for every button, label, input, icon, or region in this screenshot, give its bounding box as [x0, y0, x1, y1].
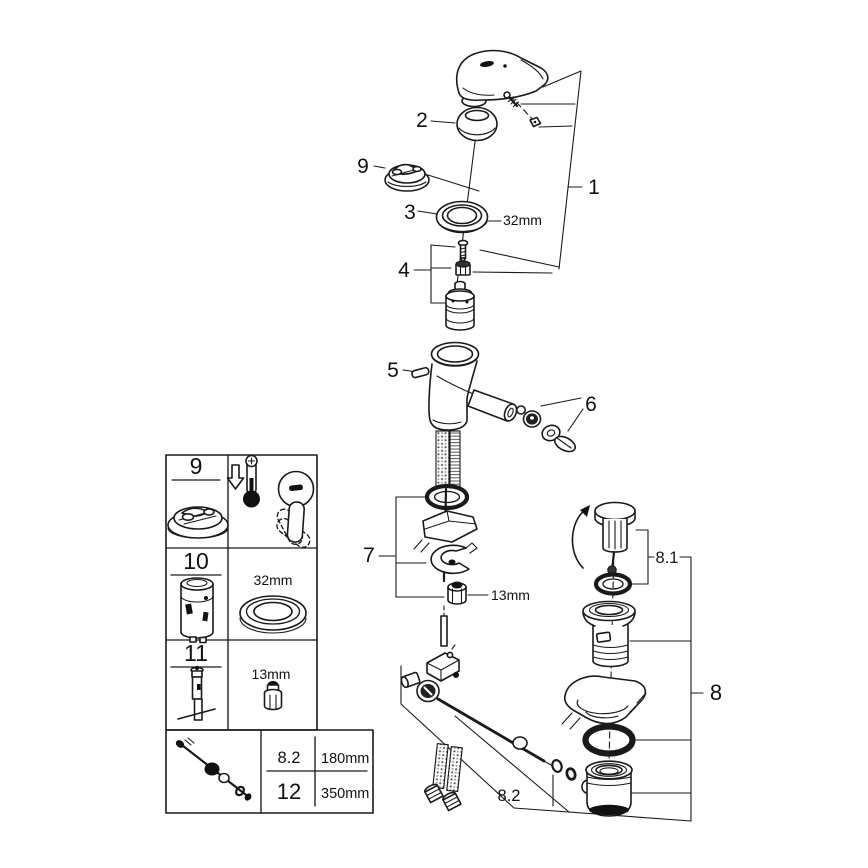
table-id-9: 9: [190, 453, 203, 479]
cap-icon: [168, 507, 228, 538]
dome-ring: [457, 108, 497, 141]
table-id-10: 10: [183, 548, 209, 574]
callout-8-1: 8.1: [656, 549, 679, 567]
callout-6: 6: [585, 393, 597, 416]
cartridge: [446, 282, 474, 331]
table-dim-13mm: 13mm: [252, 666, 291, 682]
size-len-350: 350mm: [321, 786, 369, 802]
popup-rod-assembly: [400, 616, 576, 811]
aerator-key: [540, 423, 578, 455]
rod-oring-2: [565, 768, 576, 781]
popup-stopper: [572, 503, 635, 575]
callout-3: 3: [404, 201, 416, 224]
mounting-set: [414, 486, 477, 604]
limiter-cap: [385, 165, 429, 191]
drain-flange: [583, 602, 635, 667]
bracket-7: [379, 497, 444, 597]
leader-2: [431, 121, 455, 123]
ring-32mm-icon: [240, 596, 306, 633]
mounting-nut-13mm: [448, 582, 466, 605]
bracket-1: [473, 71, 582, 273]
cartridge-fixing-set: [446, 240, 474, 330]
exploded-parts-diagram: 1 2 9 3 32mm 4 5 6 7 13mm 8.1 8 8.2 9: [0, 0, 868, 868]
drain-set: [562, 503, 646, 817]
handle-screw: [504, 92, 541, 127]
callout-8: 8: [710, 680, 722, 705]
rod-ball: [513, 737, 527, 749]
callout-labels: 1 2 9 3 32mm 4 5 6 7 13mm 8.1 8 8.2: [357, 109, 722, 805]
lever-handle: [457, 51, 548, 107]
thermometer-hot-icon: [243, 456, 260, 508]
rod-clamp: [427, 645, 459, 681]
rod-oring-1: [551, 759, 563, 773]
size-id-82: 8.2: [278, 749, 301, 767]
dim-13mm: 13mm: [491, 587, 530, 603]
leader-9: [374, 166, 385, 168]
rod-fitting: [400, 672, 420, 688]
dim-32mm: 32mm: [503, 212, 542, 228]
spout: [468, 390, 519, 423]
lever-positions-icon: [274, 472, 313, 551]
nut-13mm-icon: [265, 681, 282, 710]
arrow-down-icon: [228, 465, 244, 489]
faucet-body: [411, 343, 519, 489]
horseshoe-washer: [431, 543, 477, 573]
size-id-12: 12: [277, 779, 301, 804]
callout-4: 4: [398, 259, 410, 282]
drain-body: [582, 761, 632, 816]
cartridge-icon: [181, 578, 213, 643]
size-len-180: 180mm: [321, 751, 369, 767]
escutcheon-ring-32mm: [437, 202, 488, 233]
table-dim-32mm: 32mm: [254, 572, 293, 588]
aerator-oring: [517, 406, 525, 414]
socket-tool-icon: [178, 666, 215, 720]
rod-knob: [417, 681, 439, 702]
callout-2: 2: [416, 109, 428, 132]
rotate-arrow-icon: [580, 505, 590, 517]
parts-table: 9 10: [166, 453, 373, 813]
cartridge-nut: [456, 261, 470, 275]
callout-8-2: 8.2: [498, 787, 521, 805]
callout-7: 7: [363, 544, 375, 567]
rod-pin: [441, 616, 447, 646]
drain-gasket: [586, 727, 633, 754]
leader-3: [418, 211, 437, 214]
callout-1: 1: [588, 176, 600, 199]
leader-9-to-axis: [428, 175, 479, 191]
supply-shank: [436, 431, 460, 488]
aerator: [524, 411, 541, 427]
table-id-11: 11: [184, 640, 208, 666]
supply-hoses: [424, 744, 463, 811]
callout-5: 5: [387, 359, 399, 382]
diagram-canvas: 1 2 9 3 32mm 4 5 6 7 13mm 8.1 8 8.2 9: [0, 0, 868, 868]
body-pin: [411, 367, 429, 378]
drain-wedge: [562, 676, 646, 729]
pull-rod-icon: [174, 738, 253, 802]
callout-9: 9: [357, 155, 369, 178]
